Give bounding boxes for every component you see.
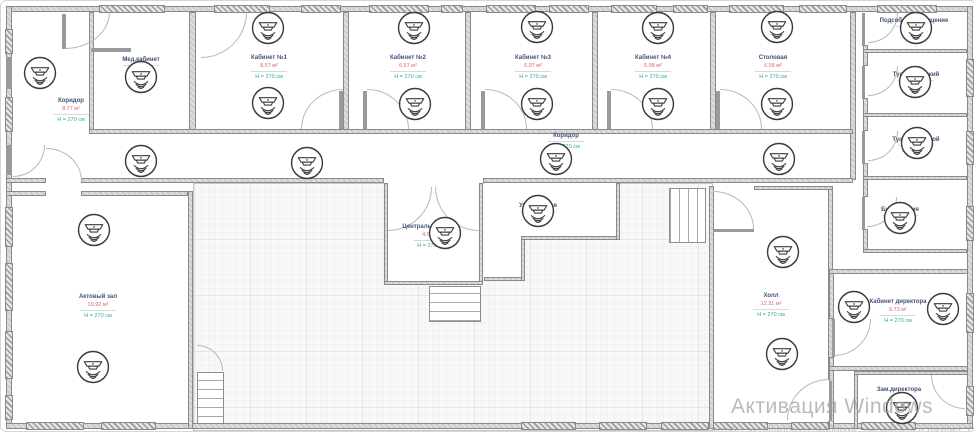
smoke-detector-icon[interactable]: [761, 88, 794, 121]
window-hatch: [966, 386, 974, 416]
wall: [521, 238, 525, 281]
wall: [592, 12, 598, 131]
label-divider: [390, 71, 426, 72]
room-height: H = 270 см: [390, 73, 426, 81]
smoke-detector-icon[interactable]: [78, 214, 111, 247]
wall: [384, 281, 483, 285]
door-leaf: [91, 48, 131, 52]
window-hatch: [5, 395, 13, 420]
smoke-detector-icon[interactable]: [767, 236, 800, 269]
room-label-kabinet-direktora: Кабинет директора6.73 м²H = 270 см: [870, 298, 927, 325]
wall: [863, 249, 967, 253]
label-divider: [53, 114, 89, 115]
room-label-holl: Холл12.31 м²H = 270 см: [753, 292, 789, 319]
window-hatch: [599, 422, 647, 430]
room-area: 6.73 м²: [870, 306, 927, 314]
smoke-detector-icon[interactable]: [291, 147, 324, 180]
room-name: Столовая: [755, 54, 791, 62]
wall: [81, 191, 188, 196]
label-divider: [755, 71, 791, 72]
room-label-kabinet-4: Кабинет №45.98 м²H = 270 см: [635, 54, 671, 81]
room-area: 6.57 м²: [390, 62, 426, 70]
room-height: H = 270 см: [53, 116, 89, 124]
smoke-detector-icon[interactable]: [522, 195, 555, 228]
door-arc: [301, 89, 343, 129]
wall: [829, 269, 968, 274]
door-leaf: [607, 91, 611, 129]
door-arc: [46, 148, 82, 181]
label-divider: [635, 71, 671, 72]
wall: [863, 176, 967, 180]
smoke-detector-icon[interactable]: [429, 217, 462, 250]
door-leaf: [481, 91, 485, 129]
room-name: Актовый зал: [79, 293, 117, 301]
wall: [829, 269, 834, 319]
window-hatch: [966, 293, 974, 333]
room-height: H = 270 см: [755, 73, 791, 81]
smoke-detector-icon[interactable]: [901, 127, 934, 160]
room-area: 12.31 м²: [753, 300, 789, 308]
door-leaf: [862, 197, 865, 230]
wall: [479, 183, 483, 285]
smoke-detector-icon[interactable]: [24, 57, 57, 90]
room-label-stolovaya: Столовая6.58 м²H = 270 см: [755, 54, 791, 81]
door-leaf: [716, 91, 720, 129]
room-label-kabinet-3: Кабинет №36.97 м²H = 270 см: [515, 54, 551, 81]
room-area: 5.98 м²: [635, 62, 671, 70]
smoke-detector-icon[interactable]: [125, 145, 158, 178]
smoke-detector-icon[interactable]: [900, 12, 933, 45]
window-hatch: [99, 5, 165, 13]
label-divider: [80, 310, 116, 311]
window-hatch: [101, 422, 156, 430]
wall: [89, 129, 853, 134]
window-hatch: [966, 59, 974, 97]
window-hatch: [5, 29, 13, 54]
smoke-detector-icon[interactable]: [398, 12, 431, 45]
window-hatch: [26, 422, 84, 430]
window-hatch: [521, 422, 576, 430]
room-name: Кабинет №4: [635, 54, 671, 62]
smoke-detector-icon[interactable]: [761, 11, 794, 44]
door-arc: [65, 12, 110, 49]
door-leaf: [862, 131, 865, 164]
smoke-detector-icon[interactable]: [642, 12, 675, 45]
window-hatch: [966, 206, 974, 241]
door-arc: [201, 12, 247, 58]
room-height: H = 270 см: [79, 312, 117, 320]
wall: [521, 236, 620, 240]
wall: [863, 163, 868, 197]
room-name: Холл: [753, 292, 789, 300]
room-area: 8.77 м²: [53, 105, 89, 113]
windows-activation-watermark-subtext: Чтобы активировать Windows, перейдите в …: [713, 425, 974, 432]
smoke-detector-icon[interactable]: [521, 11, 554, 44]
door-leaf: [862, 66, 865, 99]
wall: [863, 113, 967, 117]
label-divider: [880, 315, 916, 316]
room-area: 6.97 м²: [515, 62, 551, 70]
smoke-detector-icon[interactable]: [252, 87, 285, 120]
smoke-detector-icon[interactable]: [838, 291, 871, 324]
room-label-aktovyy-zal: Актовый зал19.92 м²H = 270 см: [79, 293, 117, 320]
smoke-detector-icon[interactable]: [77, 351, 110, 384]
door-arc: [720, 89, 762, 129]
window-hatch: [441, 5, 463, 13]
wall: [850, 12, 856, 180]
smoke-detector-icon[interactable]: [125, 61, 158, 94]
room-name: Коридор: [548, 132, 584, 140]
room-area: 8.57 м²: [251, 62, 287, 70]
window-hatch: [661, 422, 709, 430]
door-arc: [13, 145, 45, 177]
label-divider: [515, 71, 551, 72]
window-hatch: [673, 5, 708, 13]
door-leaf: [6, 57, 12, 89]
room-area: 6.58 м²: [755, 62, 791, 70]
staircase: [429, 286, 481, 322]
smoke-detector-icon[interactable]: [884, 202, 917, 235]
window-hatch: [5, 263, 13, 311]
wall: [863, 49, 967, 53]
room-name: Кабинет №3: [515, 54, 551, 62]
door-arc: [834, 319, 871, 356]
wall: [343, 12, 349, 131]
window-hatch: [5, 97, 13, 132]
wall: [484, 277, 525, 281]
door-arc: [931, 375, 965, 409]
window-hatch: [799, 5, 847, 13]
smoke-detector-icon[interactable]: [540, 143, 573, 176]
floor-plan: Активация Windows Чтобы активировать Win…: [0, 0, 974, 432]
wall: [81, 178, 384, 183]
smoke-detector-icon[interactable]: [642, 88, 675, 121]
smoke-detector-icon[interactable]: [927, 293, 960, 326]
window-hatch: [966, 131, 974, 165]
door-leaf: [6, 145, 12, 175]
staircase: [197, 372, 224, 427]
staircase: [669, 188, 706, 243]
room-name: Кабинет №1: [251, 54, 287, 62]
label-divider: [251, 71, 287, 72]
room-name: Кабинет №2: [390, 54, 426, 62]
smoke-detector-icon[interactable]: [763, 143, 796, 176]
door-leaf: [62, 14, 66, 49]
smoke-detector-icon[interactable]: [899, 66, 932, 99]
wall: [188, 191, 193, 429]
room-height: H = 270 см: [515, 73, 551, 81]
smoke-detector-icon[interactable]: [521, 88, 554, 121]
door-leaf: [339, 91, 343, 129]
room-label-koridor-left: Коридор8.77 м²H = 270 см: [53, 97, 89, 124]
room-name: Коридор: [53, 97, 89, 105]
smoke-detector-icon[interactable]: [766, 338, 799, 371]
window-hatch: [5, 207, 13, 247]
room-floor: [484, 183, 521, 277]
room-height: H = 270 см: [870, 317, 927, 325]
room-name: Кабинет директора: [870, 298, 927, 306]
door-leaf: [832, 319, 835, 357]
smoke-detector-icon[interactable]: [252, 12, 285, 45]
smoke-detector-icon[interactable]: [399, 88, 432, 121]
room-height: H = 270 см: [753, 311, 789, 319]
door-leaf: [363, 91, 367, 129]
wall: [465, 12, 471, 131]
wall: [6, 191, 46, 196]
window-hatch: [549, 5, 589, 13]
wall: [6, 178, 46, 183]
door-leaf: [862, 13, 865, 46]
wall: [189, 12, 196, 131]
window-hatch: [301, 5, 341, 13]
wall: [616, 183, 620, 240]
label-divider: [753, 309, 789, 310]
room-height: H = 270 см: [251, 73, 287, 81]
wall: [754, 186, 833, 190]
room-height: H = 270 см: [635, 73, 671, 81]
window-hatch: [5, 331, 13, 379]
door-arc: [713, 191, 754, 229]
room-label-kabinet-2: Кабинет №26.57 м²H = 270 см: [390, 54, 426, 81]
windows-activation-watermark: Активация Windows: [731, 395, 933, 419]
room-area: 19.92 м²: [79, 301, 117, 309]
wall: [483, 178, 853, 183]
room-label-kabinet-1: Кабинет №18.57 м²H = 270 см: [251, 54, 287, 81]
door-leaf: [713, 229, 754, 232]
